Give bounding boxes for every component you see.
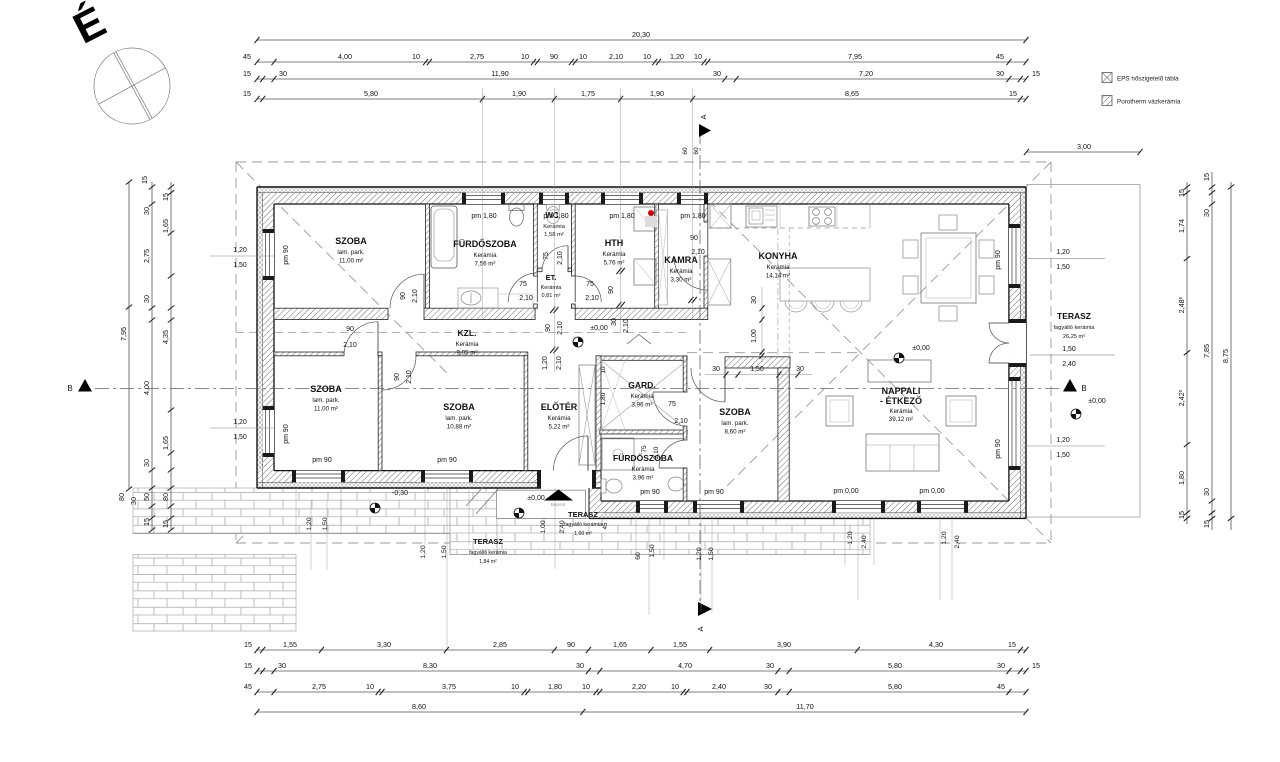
svg-text:15: 15 [1008, 640, 1016, 649]
svg-text:60: 60 [693, 147, 700, 155]
svg-text:pm 90: pm 90 [704, 489, 724, 496]
svg-text:-0,30: -0,30 [392, 490, 408, 497]
svg-text:pm 1,80: pm 1,80 [471, 213, 496, 220]
svg-text:±0,00: ±0,00 [1088, 398, 1106, 405]
svg-text:2,20: 2,20 [632, 682, 646, 691]
svg-text:Kerámia: Kerámia [541, 285, 563, 291]
svg-text:2,10: 2,10 [343, 342, 357, 349]
svg-text:1,20: 1,20 [306, 517, 313, 530]
svg-text:30: 30 [996, 69, 1004, 78]
svg-text:2,10: 2,10 [412, 289, 419, 303]
svg-text:3,00: 3,00 [1077, 142, 1091, 151]
svg-text:2,85: 2,85 [493, 640, 507, 649]
svg-text:8,75: 8,75 [1221, 349, 1230, 363]
svg-text:Kerámia: Kerámia [547, 415, 571, 422]
svg-text:75: 75 [668, 401, 676, 408]
svg-text:Kerámia: Kerámia [630, 393, 654, 400]
svg-text:2,40: 2,40 [861, 535, 868, 548]
svg-text:10: 10 [511, 682, 519, 691]
svg-text:1,58 m²: 1,58 m² [544, 232, 564, 238]
svg-text:ELŐTÉR: ELŐTÉR [541, 401, 578, 412]
svg-text:1,84 m²: 1,84 m² [479, 559, 497, 565]
svg-text:45: 45 [997, 682, 1005, 691]
svg-text:GARD.: GARD. [628, 380, 655, 390]
svg-text:10: 10 [412, 52, 420, 61]
svg-text:2,75: 2,75 [470, 52, 484, 61]
svg-text:pm 90: pm 90 [283, 424, 290, 444]
svg-text:pm 90: pm 90 [995, 439, 1002, 459]
svg-text:TERASZ: TERASZ [1057, 311, 1091, 321]
svg-text:4,00: 4,00 [142, 381, 151, 395]
svg-text:±0,00: ±0,00 [527, 495, 545, 502]
svg-text:1,50: 1,50 [1056, 264, 1070, 271]
svg-text:pm 0,00: pm 0,00 [833, 488, 858, 495]
svg-text:5,80: 5,80 [888, 682, 902, 691]
svg-text:10: 10 [582, 682, 590, 691]
svg-text:B: B [67, 384, 72, 393]
svg-text:1,20: 1,20 [420, 545, 427, 558]
svg-text:1,20: 1,20 [670, 52, 684, 61]
svg-text:pm 90: pm 90 [312, 457, 332, 464]
svg-text:7,56 m²: 7,56 m² [475, 261, 496, 268]
svg-text:90: 90 [400, 292, 407, 300]
svg-text:26,25 m²: 26,25 m² [1063, 334, 1085, 340]
svg-text:50: 50 [142, 493, 151, 501]
svg-text:1,50: 1,50 [1062, 346, 1076, 353]
svg-text:ET.: ET. [546, 273, 557, 282]
svg-text:2,10: 2,10 [653, 446, 660, 459]
svg-text:1,50: 1,50 [441, 545, 448, 558]
svg-text:B: B [1081, 384, 1086, 393]
svg-text:1,50: 1,50 [233, 262, 247, 269]
svg-text:1,50: 1,50 [1056, 452, 1070, 459]
svg-text:2,40: 2,40 [712, 682, 726, 691]
svg-text:4,00: 4,00 [338, 52, 352, 61]
svg-text:11,70: 11,70 [796, 702, 813, 711]
svg-text:2,10: 2,10 [557, 321, 564, 335]
svg-text:A: A [699, 114, 708, 119]
svg-text:7,20: 7,20 [859, 69, 873, 78]
svg-text:30: 30 [1202, 488, 1211, 496]
svg-text:2,10: 2,10 [674, 418, 688, 425]
svg-text:15: 15 [142, 518, 151, 526]
svg-text:2,10: 2,10 [585, 295, 599, 302]
svg-text:10: 10 [600, 366, 607, 374]
svg-text:1,20: 1,20 [847, 531, 854, 544]
svg-text:1,74: 1,74 [1177, 219, 1186, 233]
svg-text:10,88 m²: 10,88 m² [447, 424, 471, 431]
svg-text:Kerámia: Kerámia [631, 466, 655, 473]
svg-text:SZOBA: SZOBA [335, 236, 367, 246]
svg-text:1,65: 1,65 [161, 219, 170, 233]
svg-text:2,10: 2,10 [557, 251, 564, 265]
svg-text:2,10: 2,10 [519, 295, 533, 302]
svg-text:90: 90 [394, 373, 401, 381]
svg-text:20,30: 20,30 [632, 30, 650, 39]
svg-text:90: 90 [690, 235, 698, 242]
svg-text:2,40: 2,40 [1062, 361, 1076, 368]
svg-text:pm 90: pm 90 [283, 245, 290, 265]
svg-text:±0,00: ±0,00 [912, 345, 930, 352]
svg-text:2,75: 2,75 [142, 249, 151, 263]
svg-text:1,20: 1,20 [233, 247, 247, 254]
svg-text:8,30: 8,30 [423, 661, 437, 670]
svg-text:60: 60 [635, 552, 642, 560]
svg-text:15: 15 [1009, 89, 1017, 98]
svg-text:30: 30 [611, 318, 618, 326]
svg-text:1,60 m²: 1,60 m² [574, 531, 592, 537]
svg-text:KONYHA: KONYHA [758, 251, 798, 261]
svg-text:30: 30 [764, 682, 772, 691]
svg-text:75: 75 [641, 445, 648, 453]
svg-text:pm 0,00: pm 0,00 [919, 488, 944, 495]
svg-text:8,60: 8,60 [412, 702, 426, 711]
svg-text:pm 90: pm 90 [995, 250, 1002, 270]
svg-text:7,95: 7,95 [119, 327, 128, 341]
svg-text:11,00 m²: 11,00 m² [314, 406, 338, 413]
svg-text:10: 10 [521, 52, 529, 61]
svg-text:5,76 m²: 5,76 m² [604, 260, 625, 267]
svg-text:0,81 m²: 0,81 m² [542, 293, 561, 299]
svg-text:Kerámia: Kerámia [889, 408, 913, 415]
svg-text:1,20: 1,20 [941, 531, 948, 544]
svg-text:15: 15 [243, 89, 251, 98]
svg-text:1,00: 1,00 [540, 520, 547, 533]
svg-text:90: 90 [545, 324, 552, 332]
svg-text:SZOBA: SZOBA [719, 407, 751, 417]
svg-text:pm 1,80: pm 1,80 [543, 213, 568, 220]
svg-text:lam. park.: lam. park. [312, 397, 339, 404]
svg-text:10: 10 [579, 52, 587, 61]
svg-text:30: 30 [278, 661, 286, 670]
svg-text:10: 10 [694, 52, 702, 61]
svg-text:45: 45 [603, 522, 609, 529]
svg-text:pm 1,80: pm 1,80 [609, 213, 634, 220]
svg-text:fagyálló kerámia: fagyálló kerámia [469, 550, 507, 556]
svg-text:11,90: 11,90 [491, 69, 508, 78]
svg-text:2,10: 2,10 [406, 370, 413, 384]
svg-text:Porotherm vázkerámia: Porotherm vázkerámia [1117, 99, 1181, 106]
svg-text:39,12 m²: 39,12 m² [889, 416, 913, 423]
svg-text:pm 90: pm 90 [437, 457, 457, 464]
svg-text:45: 45 [244, 682, 252, 691]
svg-text:1,80: 1,80 [1177, 471, 1186, 485]
svg-text:1,80: 1,80 [600, 392, 607, 405]
svg-text:1,50: 1,50 [708, 547, 715, 560]
svg-text:90: 90 [550, 52, 558, 61]
svg-text:SZOBA: SZOBA [310, 384, 342, 394]
svg-text:Kerámia: Kerámia [455, 341, 479, 348]
svg-text:45: 45 [243, 52, 251, 61]
svg-text:3,30 m²: 3,30 m² [671, 277, 692, 284]
svg-text:7,85: 7,85 [1202, 344, 1211, 358]
svg-text:1,55: 1,55 [283, 640, 297, 649]
svg-text:pm 1,80: pm 1,80 [680, 213, 705, 220]
svg-text:2,40: 2,40 [954, 535, 961, 548]
svg-text:lam. park.: lam. park. [721, 420, 748, 427]
svg-text:15: 15 [1032, 661, 1040, 670]
svg-text:3,96 m²: 3,96 m² [632, 402, 653, 409]
svg-text:SZOBA: SZOBA [443, 402, 475, 412]
svg-text:10: 10 [643, 52, 651, 61]
svg-text:2,10: 2,10 [609, 52, 623, 61]
svg-text:fagyálló kerámia: fagyálló kerámia [1054, 325, 1096, 331]
svg-text:10: 10 [671, 682, 679, 691]
svg-text:15: 15 [1032, 69, 1040, 78]
svg-text:4,35: 4,35 [161, 330, 170, 344]
svg-text:3,75: 3,75 [442, 682, 456, 691]
svg-text:Kerámia: Kerámia [766, 264, 790, 271]
svg-text:15: 15 [161, 520, 170, 528]
svg-text:fagyálló kerámia: fagyálló kerámia [564, 522, 602, 528]
svg-text:1,50: 1,50 [322, 517, 329, 530]
svg-text:90: 90 [567, 640, 575, 649]
svg-text:3,96 m²: 3,96 m² [633, 475, 654, 482]
svg-text:15: 15 [1177, 511, 1186, 519]
svg-text:A: A [696, 626, 705, 631]
svg-text:80: 80 [117, 493, 126, 501]
svg-text:pm 90: pm 90 [640, 489, 660, 496]
svg-text:30: 30 [142, 207, 151, 215]
svg-text:1,20: 1,20 [542, 356, 549, 370]
svg-text:80: 80 [161, 493, 170, 501]
svg-text:7,95: 7,95 [848, 52, 862, 61]
svg-text:lam. park.: lam. park. [445, 415, 472, 422]
svg-text:1,65: 1,65 [161, 436, 170, 450]
svg-text:2,75: 2,75 [312, 682, 326, 691]
svg-text:5,80: 5,80 [888, 661, 902, 670]
svg-text:30: 30 [766, 661, 774, 670]
svg-text:30: 30 [129, 497, 138, 505]
svg-text:30: 30 [997, 661, 1005, 670]
svg-text:FÜRDŐSZOBA: FÜRDŐSZOBA [613, 452, 673, 463]
svg-text:1,90: 1,90 [512, 89, 526, 98]
svg-text:2,10: 2,10 [623, 319, 630, 333]
svg-text:30: 30 [712, 366, 720, 373]
svg-text:15: 15 [140, 176, 149, 184]
svg-text:4,70: 4,70 [678, 661, 692, 670]
svg-text:1,50: 1,50 [233, 434, 247, 441]
svg-text:45: 45 [996, 52, 1004, 61]
svg-text:75: 75 [586, 281, 594, 288]
svg-text:75: 75 [519, 281, 527, 288]
svg-text:15: 15 [1202, 520, 1211, 528]
svg-text:15: 15 [1177, 189, 1186, 197]
svg-text:15: 15 [244, 640, 252, 649]
svg-text:8,65: 8,65 [845, 89, 859, 98]
svg-text:3,90: 3,90 [777, 640, 791, 649]
svg-text:90: 90 [346, 326, 354, 333]
svg-text:TERASZ: TERASZ [473, 537, 503, 546]
svg-text:Kerámia: Kerámia [473, 252, 497, 259]
svg-text:90: 90 [608, 286, 615, 294]
svg-text:3,30: 3,30 [377, 640, 391, 649]
svg-text:11,00 m²: 11,00 m² [339, 258, 363, 265]
svg-text:30: 30 [576, 661, 584, 670]
svg-text:±0,00: ±0,00 [590, 325, 608, 332]
svg-text:1,20: 1,20 [696, 547, 703, 560]
svg-text:NAPPALI: NAPPALI [882, 386, 921, 396]
svg-text:1,20: 1,20 [1056, 437, 1070, 444]
svg-text:10: 10 [366, 682, 374, 691]
svg-text:FÜRDŐSZOBA: FÜRDŐSZOBA [453, 238, 517, 249]
svg-text:30: 30 [142, 295, 151, 303]
svg-text:15: 15 [243, 69, 251, 78]
svg-text:Kerámia: Kerámia [669, 268, 693, 275]
svg-text:4,30: 4,30 [929, 640, 943, 649]
svg-text:15: 15 [244, 661, 252, 670]
svg-text:- ÉTKEZŐ: - ÉTKEZŐ [880, 395, 922, 406]
svg-text:1,50: 1,50 [750, 366, 764, 373]
svg-text:30: 30 [1202, 209, 1211, 217]
svg-text:1,65: 1,65 [613, 640, 627, 649]
svg-text:lam. park.: lam. park. [337, 249, 364, 256]
svg-text:2,10: 2,10 [556, 356, 563, 370]
svg-text:KZL.: KZL. [458, 328, 477, 338]
svg-text:15: 15 [1202, 173, 1211, 181]
svg-text:KAMRA: KAMRA [664, 255, 698, 265]
svg-text:30: 30 [142, 459, 151, 467]
svg-text:1,80: 1,80 [548, 682, 562, 691]
svg-text:9,05 m²: 9,05 m² [457, 350, 478, 357]
svg-text:15: 15 [161, 193, 170, 201]
svg-text:Kerámia: Kerámia [602, 251, 626, 258]
svg-text:EPS hőszigetelő tábla: EPS hőszigetelő tábla [1117, 76, 1179, 83]
svg-text:1,50: 1,50 [649, 544, 656, 557]
svg-text:8,60 m²: 8,60 m² [725, 429, 746, 436]
svg-text:2,10: 2,10 [691, 249, 705, 256]
svg-text:1,00: 1,00 [751, 329, 758, 343]
svg-text:1,55: 1,55 [673, 640, 687, 649]
svg-text:1,75: 1,75 [581, 89, 595, 98]
svg-text:Bejárat: Bejárat [551, 502, 566, 507]
svg-text:TERASZ: TERASZ [568, 510, 598, 519]
svg-text:1,20: 1,20 [233, 419, 247, 426]
svg-text:5,80: 5,80 [364, 89, 378, 98]
svg-text:30: 30 [279, 69, 287, 78]
svg-text:1,20: 1,20 [1056, 249, 1070, 256]
svg-text:75: 75 [543, 252, 550, 260]
svg-text:30: 30 [751, 296, 758, 304]
svg-text:30: 30 [713, 69, 721, 78]
svg-text:1,90: 1,90 [650, 89, 664, 98]
svg-text:5,22 m²: 5,22 m² [549, 424, 570, 431]
svg-text:60: 60 [682, 147, 689, 155]
